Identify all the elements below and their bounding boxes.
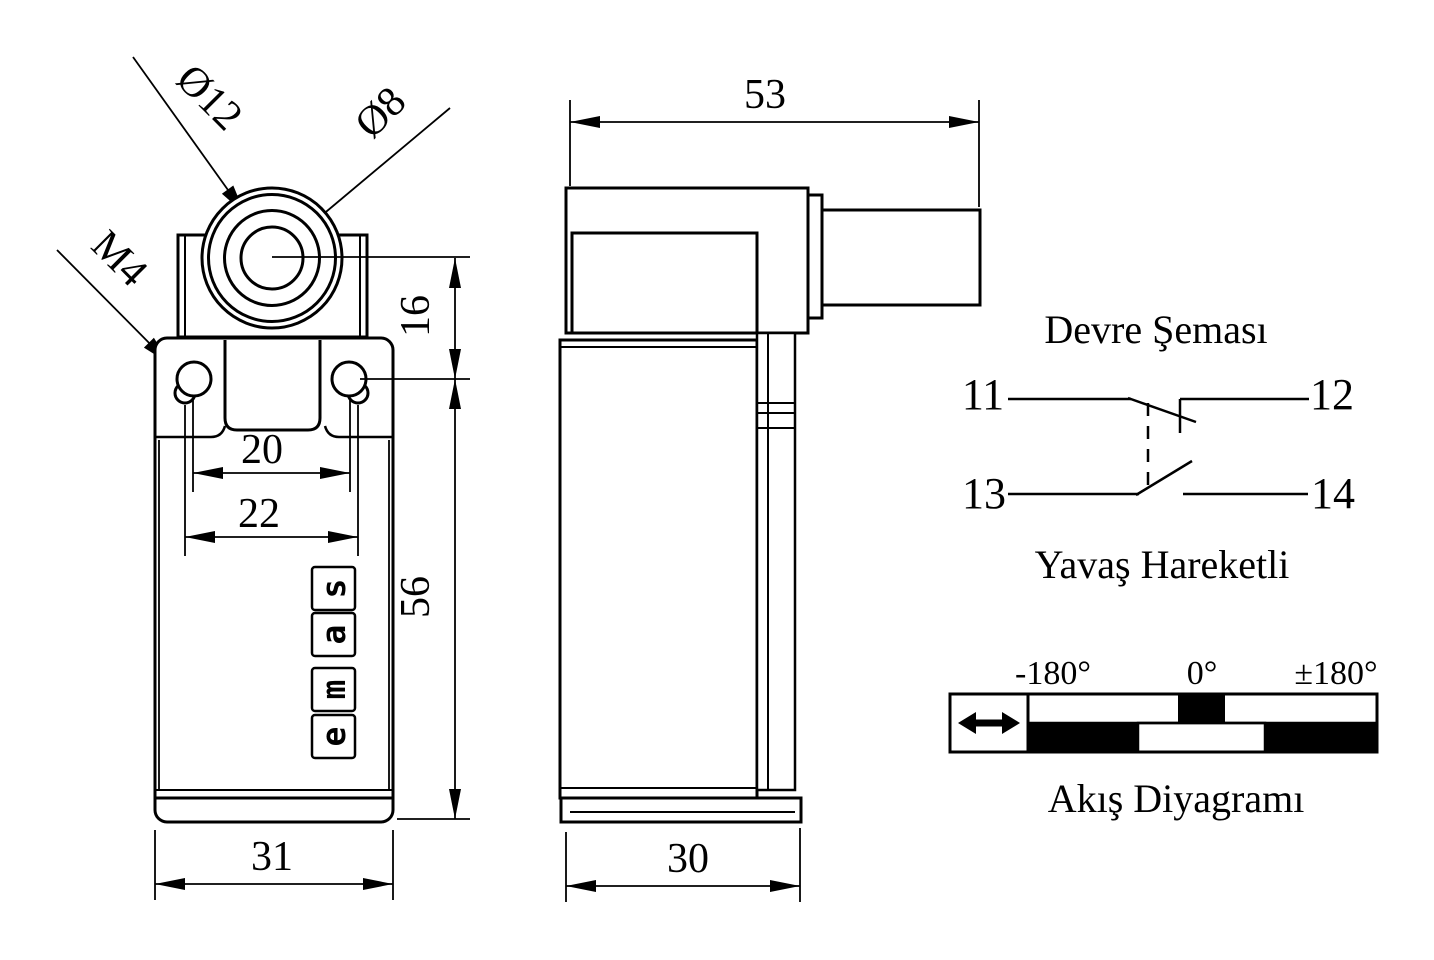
dim-31-label: 31	[251, 834, 293, 880]
dim-16-label: 16	[393, 295, 439, 337]
circuit-diagram: Devre Şeması 11 12 13 14 Yavaş Hareketli	[962, 307, 1355, 587]
dim-30: 30	[566, 828, 800, 902]
logo-letter-a: a	[314, 625, 353, 645]
terminal-11-label: 11	[962, 370, 1004, 419]
dim-30-label: 30	[667, 836, 709, 882]
side-view: 53 30	[560, 72, 980, 902]
terminal-14-label: 14	[1311, 469, 1355, 518]
dim-56: 56	[393, 379, 461, 819]
angle-label-neg: -180°	[1015, 655, 1091, 692]
dia12-label: Ø12	[167, 56, 251, 140]
terminal-12-label: 12	[1310, 370, 1354, 419]
mounting-hole-left-main	[177, 362, 211, 396]
logo-letter-s: s	[314, 579, 353, 599]
nc-contact-arm	[1128, 398, 1196, 422]
side-body-outline	[560, 340, 757, 798]
circuit-title: Devre Şeması	[1044, 307, 1267, 352]
dim-20-label: 20	[241, 427, 283, 473]
dim-56-label: 56	[393, 576, 439, 618]
contact-block-bottom-right	[1265, 723, 1377, 752]
plunger-inner-circle	[241, 227, 303, 289]
dim-16: 16	[393, 258, 461, 379]
side-head-inner	[572, 233, 757, 333]
side-cover-strip	[757, 333, 795, 790]
circuit-subtitle: Yavaş Hareketli	[1035, 542, 1290, 587]
dim-22-label: 22	[238, 491, 280, 537]
side-base-plate	[561, 798, 801, 822]
flow-title: Akış Diyagramı	[1048, 776, 1305, 821]
dim-31: 31	[155, 834, 393, 890]
m4-label: M4	[82, 222, 156, 296]
plunger-cylinder	[822, 210, 980, 305]
front-view: Ø12 Ø8 M4	[57, 56, 470, 900]
logo-letter-e: e	[314, 727, 353, 747]
plunger-collar	[808, 195, 822, 318]
terminal-13-label: 13	[962, 469, 1006, 518]
technical-drawing-limit-switch: Ø12 Ø8 M4	[0, 0, 1434, 960]
contact-block-top-center	[1178, 694, 1225, 723]
no-contact-arm	[1136, 461, 1192, 495]
logo-letter-m: m	[314, 680, 353, 700]
angle-label-pos: ±180°	[1294, 655, 1377, 692]
dim-53-label: 53	[744, 72, 786, 118]
angle-label-zero: 0°	[1187, 655, 1218, 692]
contact-block-bottom-left	[1028, 723, 1138, 752]
dia8-label: Ø8	[346, 78, 415, 147]
flow-diagram: -180° 0° ±180° Akış Diyagramı	[950, 655, 1378, 821]
